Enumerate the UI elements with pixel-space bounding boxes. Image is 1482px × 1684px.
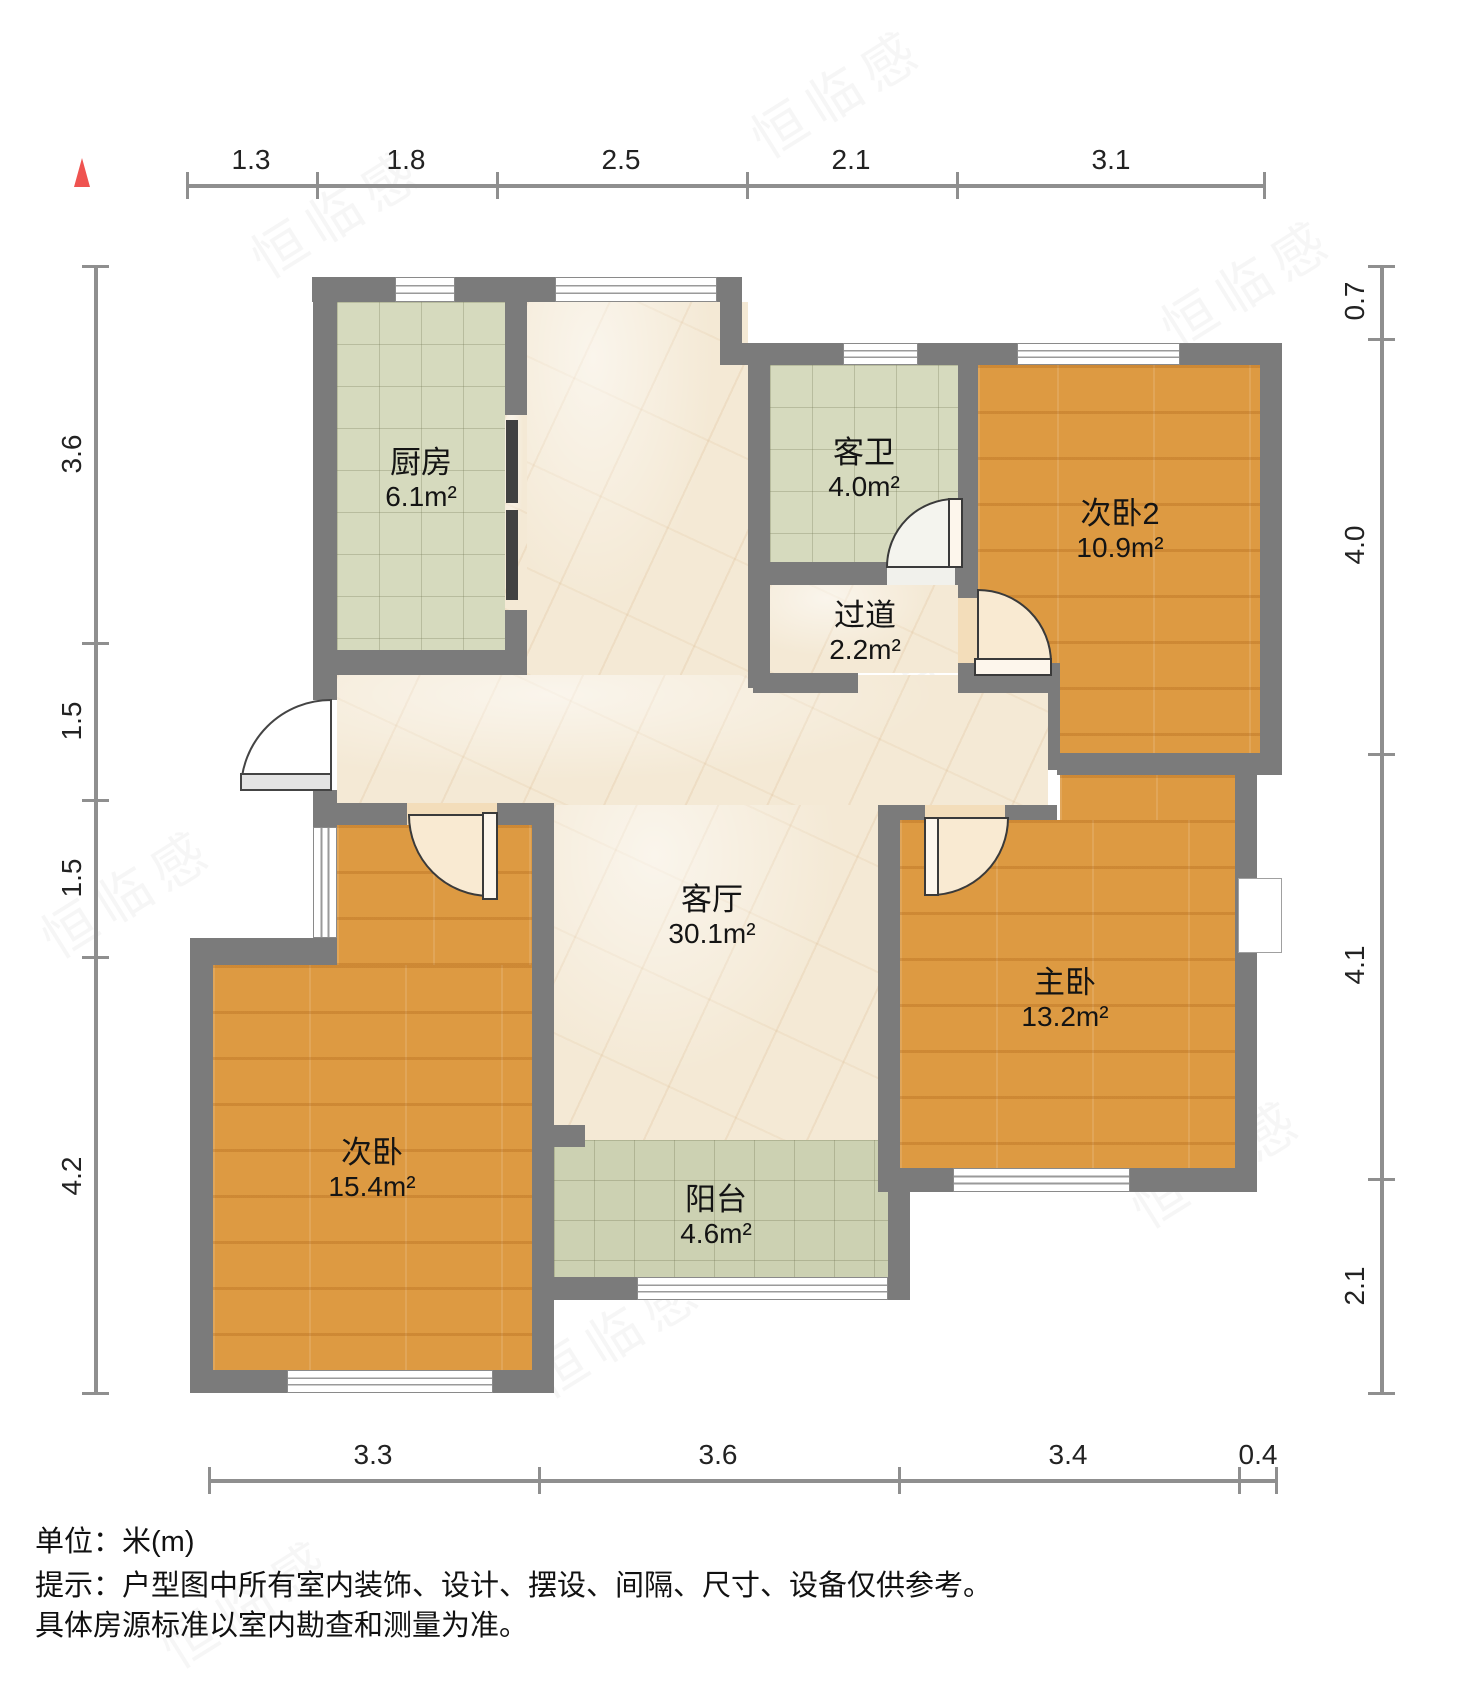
ruler-right-line [1380, 265, 1384, 1395]
ruler-tick [496, 172, 499, 199]
ruler-tick [898, 1467, 901, 1494]
ruler-top-label: 2.5 [602, 144, 641, 176]
ruler-tick [316, 172, 319, 199]
ruler-top-label: 1.8 [387, 144, 426, 176]
ruler-bottom-label: 3.4 [1049, 1439, 1088, 1471]
ruler-tick [1368, 1392, 1395, 1395]
ruler-tick [1368, 1178, 1395, 1181]
ruler-tick [1263, 172, 1266, 199]
ruler-tick [82, 956, 109, 959]
ruler-left-label: 3.6 [56, 435, 88, 474]
bathroom-door-swing [887, 499, 955, 567]
ruler-right-label: 4.0 [1339, 526, 1371, 565]
bedroom1-door-leaf [483, 813, 497, 899]
ruler-tick [186, 172, 189, 199]
hallway-area: 2.2m² [829, 633, 901, 666]
bedroom2-door-swing [978, 590, 1051, 663]
kitchen-door-frame-b [506, 510, 518, 600]
ruler-left-line [94, 265, 98, 1395]
ruler-tick [1368, 265, 1395, 268]
ruler-right-label: 4.1 [1339, 946, 1371, 985]
living-room-label: 客厅 30.1m² [668, 882, 755, 950]
ruler-tick [538, 1467, 541, 1494]
doors-overlay [0, 0, 1482, 1672]
master-door-swing [931, 818, 1008, 895]
kitchen-name: 厨房 [385, 445, 457, 480]
kitchen-area: 6.1m² [385, 480, 457, 513]
hallway-label: 过道 2.2m² [829, 598, 901, 666]
ruler-tick [208, 1467, 211, 1494]
bedroom2-name: 次卧2 [1076, 496, 1163, 531]
ruler-top-label: 3.1 [1092, 144, 1131, 176]
master-bedroom-name: 主卧 [1021, 965, 1108, 1000]
ruler-top-label: 1.3 [232, 144, 271, 176]
ruler-left-label: 1.5 [56, 859, 88, 898]
ruler-tick [82, 642, 109, 645]
ruler-tick [1238, 1467, 1241, 1494]
ruler-tick [82, 265, 109, 268]
ruler-bottom-label: 3.6 [699, 1439, 738, 1471]
ruler-bottom-line [208, 1479, 1278, 1483]
kitchen-label: 厨房 6.1m² [385, 445, 457, 513]
ruler-tick [1368, 753, 1395, 756]
bedroom2-label: 次卧2 10.9m² [1076, 496, 1163, 564]
master-door-leaf [925, 818, 938, 895]
guest-bathroom-name: 客卫 [828, 435, 900, 470]
ruler-left-label: 4.2 [56, 1157, 88, 1196]
bathroom-door-leaf [949, 499, 962, 567]
kitchen-door-frame-a [506, 420, 518, 503]
ruler-right-label: 2.1 [1339, 1267, 1371, 1306]
unit-note: 单位：米(m) [35, 1518, 194, 1560]
bedroom1-area: 15.4m² [328, 1170, 415, 1203]
floorplan-page: { "rulers": { "top": { "labels": ["1.3",… [0, 0, 1482, 1672]
balcony-label: 阳台 4.6m² [680, 1182, 752, 1250]
balcony-name: 阳台 [680, 1182, 752, 1217]
bedroom2-area: 10.9m² [1076, 531, 1163, 564]
bedroom1-door-swing [409, 815, 490, 896]
ruler-tick [1368, 338, 1395, 341]
guest-bathroom-label: 客卫 4.0m² [828, 435, 900, 503]
master-bedroom-label: 主卧 13.2m² [1021, 965, 1108, 1033]
ruler-top-line [186, 184, 1266, 188]
bedroom1-name: 次卧 [328, 1135, 415, 1170]
ruler-tick [956, 172, 959, 199]
ruler-right-label: 0.7 [1339, 282, 1371, 321]
ruler-tick [1275, 1467, 1278, 1494]
bedroom2-door-leaf [975, 659, 1051, 675]
ruler-left-label: 1.5 [56, 702, 88, 741]
balcony-area: 4.6m² [680, 1217, 752, 1250]
living-room-name: 客厅 [668, 882, 755, 917]
ruler-bottom-label: 0.4 [1239, 1439, 1278, 1471]
disclaimer-line2: 具体房源标准以室内勘查和测量为准。 [35, 1602, 528, 1644]
ruler-top-label: 2.1 [832, 144, 871, 176]
ruler-bottom-label: 3.3 [354, 1439, 393, 1471]
guest-bathroom-area: 4.0m² [828, 470, 900, 503]
ruler-tick [746, 172, 749, 199]
living-room-area: 30.1m² [668, 917, 755, 950]
ruler-tick [82, 1392, 109, 1395]
master-bedroom-area: 13.2m² [1021, 1000, 1108, 1033]
entry-door-leaf [241, 774, 331, 790]
ruler-tick [82, 799, 109, 802]
bedroom1-label: 次卧 15.4m² [328, 1135, 415, 1203]
hallway-name: 过道 [829, 598, 901, 633]
disclaimer-line1: 提示：户型图中所有室内装饰、设计、摆设、间隔、尺寸、设备仅供参考。 [35, 1562, 992, 1604]
